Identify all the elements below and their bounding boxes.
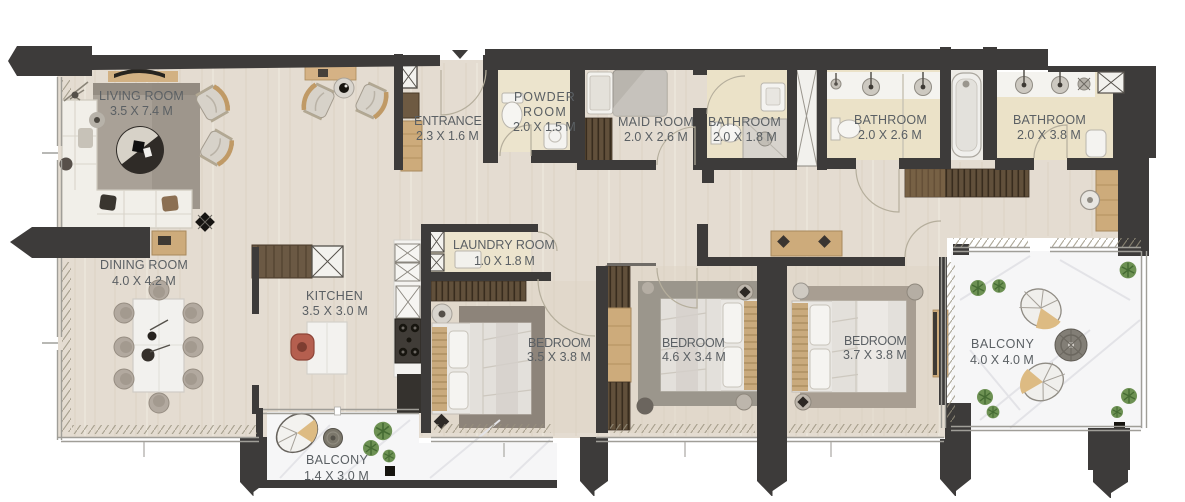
svg-text:BEDROOM: BEDROOM [528, 336, 591, 350]
svg-text:1.4 X 3.0 M: 1.4 X 3.0 M [304, 469, 369, 483]
svg-text:LAUNDRY ROOM: LAUNDRY ROOM [453, 238, 555, 252]
svg-text:BATHROOM: BATHROOM [854, 113, 927, 127]
svg-text:ENTRANCE: ENTRANCE [414, 114, 482, 128]
svg-text:BEDROOM: BEDROOM [844, 334, 907, 348]
svg-text:BATHROOM: BATHROOM [708, 115, 781, 129]
svg-text:LIVING ROOM: LIVING ROOM [99, 89, 184, 103]
svg-text:2.0 X 1.8 M: 2.0 X 1.8 M [713, 130, 777, 144]
svg-text:2.0 X 2.6 M: 2.0 X 2.6 M [858, 128, 922, 142]
svg-text:1.0 X 1.8 M: 1.0 X 1.8 M [474, 254, 535, 268]
svg-text:BATHROOM: BATHROOM [1013, 113, 1086, 127]
svg-text:BEDROOM: BEDROOM [662, 336, 725, 350]
svg-text:ROOM: ROOM [523, 105, 566, 119]
svg-text:MAID ROOM: MAID ROOM [618, 115, 694, 129]
svg-text:2.3 X 1.6 M: 2.3 X 1.6 M [416, 129, 479, 143]
svg-text:BALCONY: BALCONY [306, 453, 368, 467]
svg-text:4.0 X 4.2 M: 4.0 X 4.2 M [112, 274, 176, 288]
svg-text:4.6 X 3.4 M: 4.6 X 3.4 M [662, 350, 726, 364]
svg-text:KITCHEN: KITCHEN [306, 289, 363, 303]
svg-text:DINING ROOM: DINING ROOM [100, 258, 188, 272]
svg-text:2.0 X 1.5 M: 2.0 X 1.5 M [513, 120, 576, 134]
svg-text:2.0 X 2.6 M: 2.0 X 2.6 M [624, 130, 688, 144]
svg-text:3.5 X 7.4 M: 3.5 X 7.4 M [110, 104, 173, 118]
svg-text:BALCONY: BALCONY [971, 337, 1034, 351]
svg-text:3.5 X 3.0 M: 3.5 X 3.0 M [302, 304, 368, 318]
svg-text:POWDER: POWDER [514, 90, 575, 104]
svg-text:3.5 X 3.8 M: 3.5 X 3.8 M [527, 350, 591, 364]
svg-text:2.0 X 3.8 M: 2.0 X 3.8 M [1017, 128, 1081, 142]
svg-text:3.7 X 3.8 M: 3.7 X 3.8 M [843, 348, 907, 362]
svg-text:4.0 X 4.0 M: 4.0 X 4.0 M [970, 353, 1034, 367]
